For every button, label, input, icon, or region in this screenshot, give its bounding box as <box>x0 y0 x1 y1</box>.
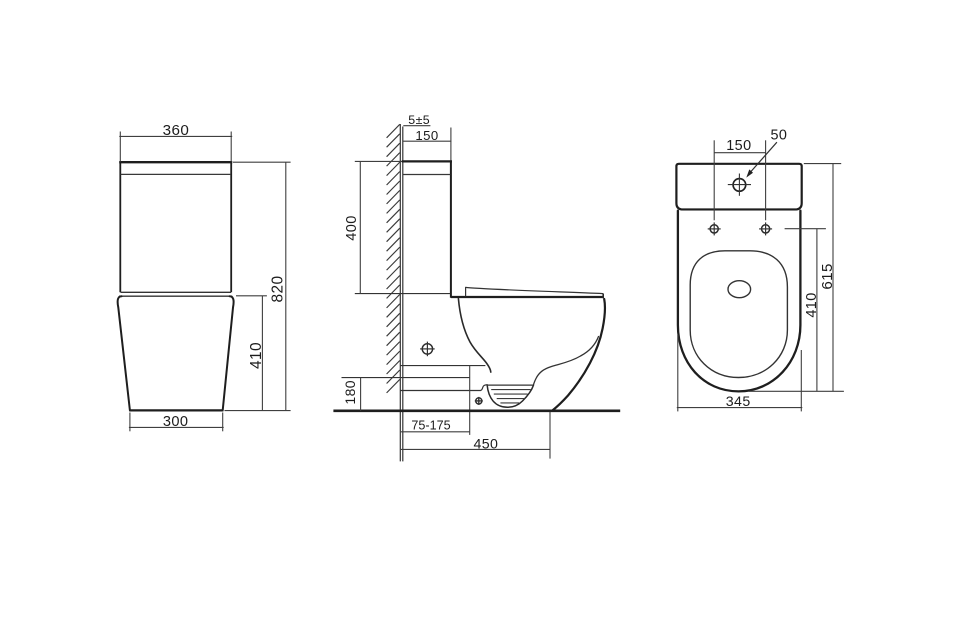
svg-text:5±5: 5±5 <box>408 113 430 127</box>
svg-text:50: 50 <box>770 127 787 143</box>
svg-text:150: 150 <box>726 138 751 154</box>
svg-text:345: 345 <box>726 394 751 410</box>
svg-text:615: 615 <box>819 263 836 290</box>
svg-text:820: 820 <box>270 276 287 303</box>
svg-text:360: 360 <box>163 122 190 139</box>
svg-text:410: 410 <box>804 292 820 317</box>
svg-text:400: 400 <box>344 215 360 241</box>
svg-text:75-175: 75-175 <box>411 418 450 432</box>
svg-text:410: 410 <box>248 342 265 369</box>
svg-text:300: 300 <box>163 414 189 430</box>
svg-text:180: 180 <box>342 380 358 405</box>
